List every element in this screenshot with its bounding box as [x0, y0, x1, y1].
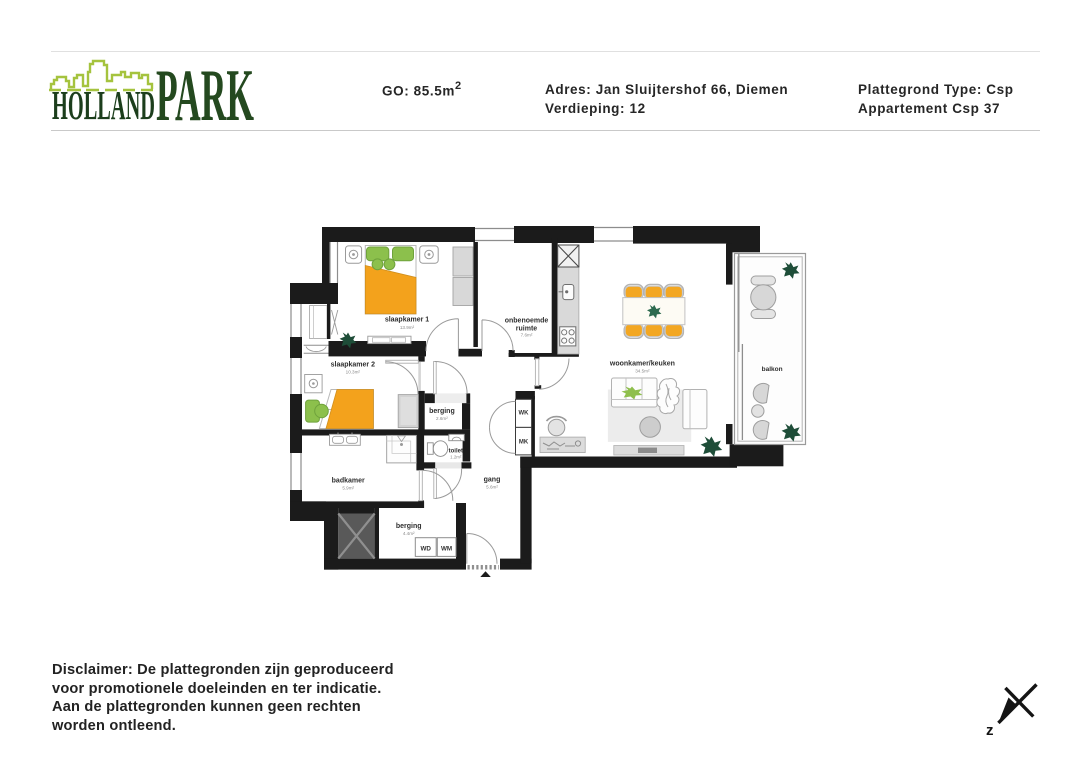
svg-text:ruimte: ruimte — [516, 326, 538, 333]
svg-text:MK: MK — [519, 440, 529, 446]
svg-text:onbenoemde: onbenoemde — [505, 318, 549, 325]
svg-text:1.2m²: 1.2m² — [450, 455, 462, 460]
svg-text:badkamer: badkamer — [332, 478, 365, 485]
svg-text:WM: WM — [441, 545, 452, 552]
svg-text:WD: WD — [420, 545, 431, 552]
svg-text:berging: berging — [429, 408, 455, 415]
svg-text:34.5m²: 34.5m² — [635, 369, 650, 374]
svg-text:5.6m²: 5.6m² — [486, 485, 498, 490]
svg-text:2.6m²: 2.6m² — [436, 416, 448, 421]
svg-text:woonkamer/keuken: woonkamer/keuken — [609, 361, 675, 368]
svg-text:slaapkamer 1: slaapkamer 1 — [385, 317, 429, 324]
svg-text:13.9m²: 13.9m² — [400, 325, 415, 330]
svg-text:4.4m²: 4.4m² — [403, 531, 415, 536]
svg-text:10.3m²: 10.3m² — [346, 370, 361, 375]
svg-text:7.6m²: 7.6m² — [521, 333, 533, 338]
svg-text:gang: gang — [484, 477, 501, 484]
svg-text:WK: WK — [519, 411, 530, 417]
svg-text:berging: berging — [396, 523, 422, 530]
svg-text:5.9m²: 5.9m² — [342, 486, 354, 491]
svg-text:slaapkamer 2: slaapkamer 2 — [331, 362, 375, 369]
svg-text:balkon: balkon — [762, 366, 783, 373]
